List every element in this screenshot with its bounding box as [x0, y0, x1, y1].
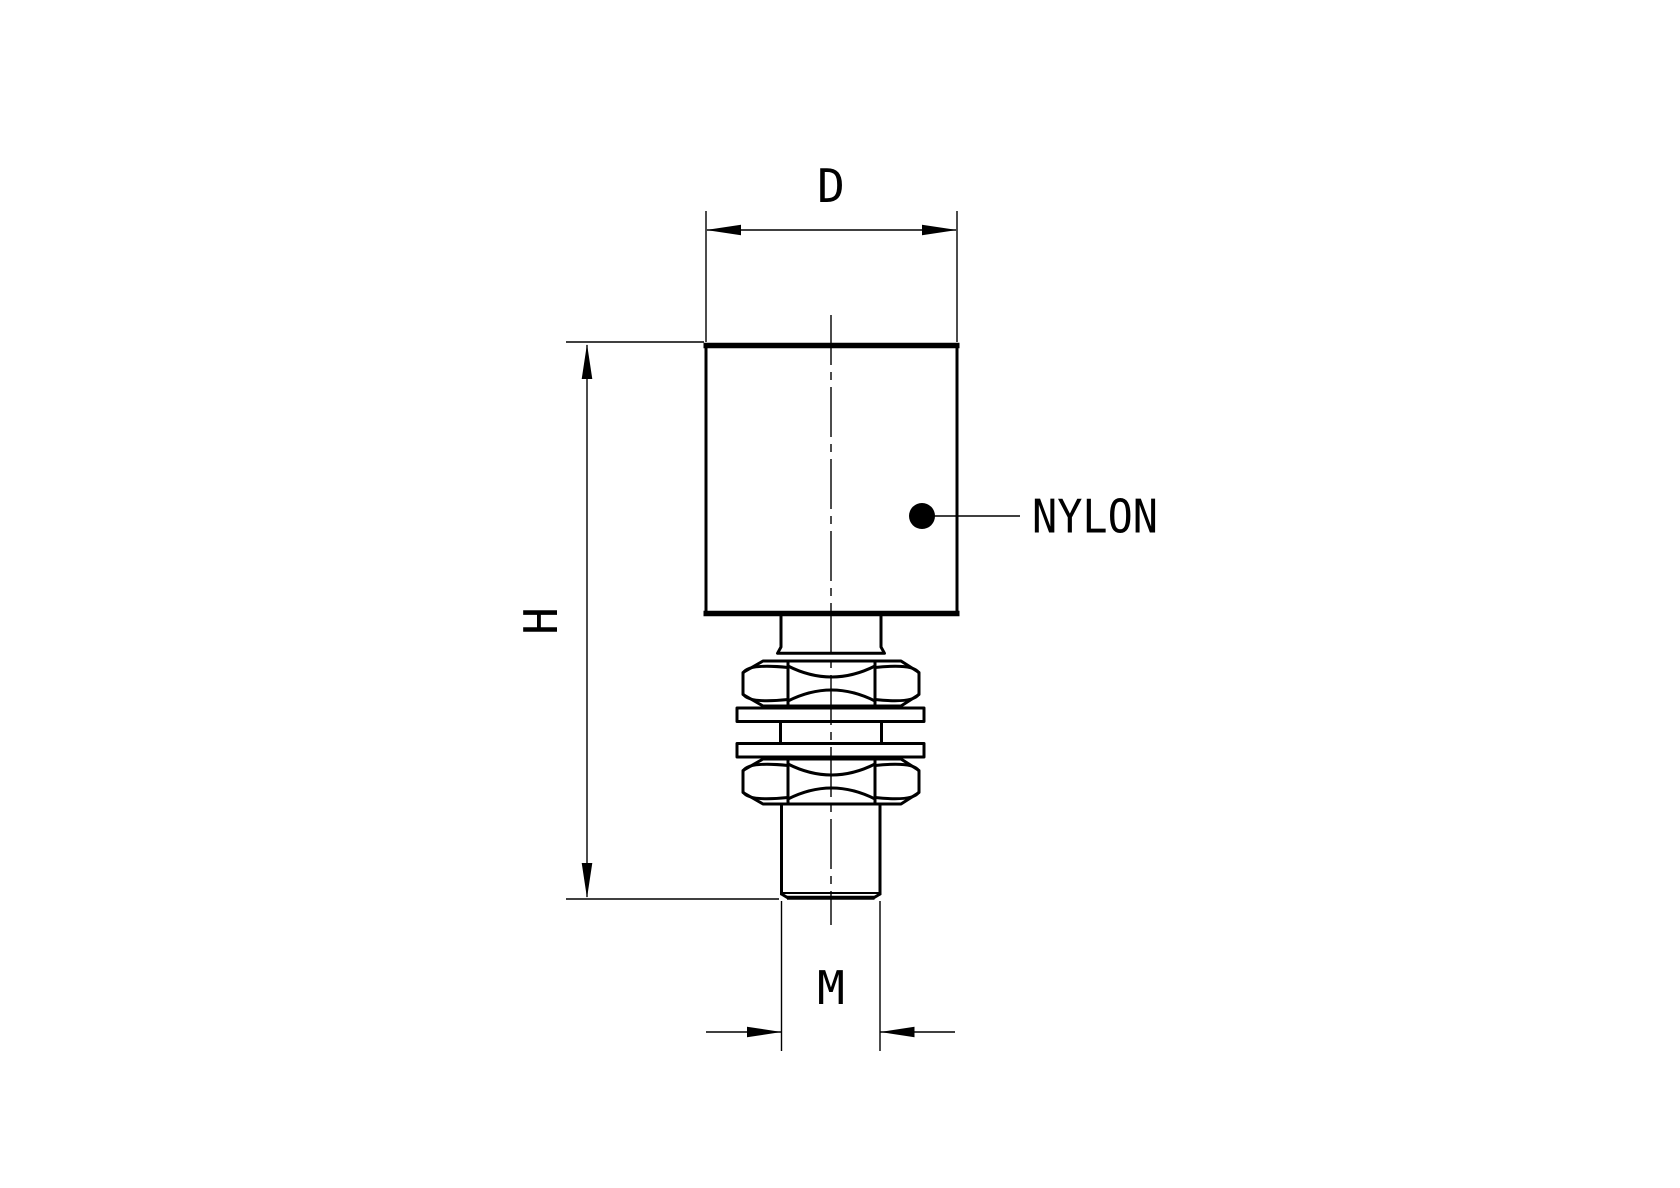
d-arrow-right [922, 225, 957, 236]
h-label: H [514, 607, 568, 635]
dimension-d: D [706, 159, 957, 342]
h-arrow-bottom [582, 863, 593, 898]
d-label: D [817, 159, 845, 213]
material-label: NYLON [1032, 490, 1158, 544]
stud-chamfer-left [782, 894, 788, 898]
drawing-canvas: D H M NYLON [0, 0, 1680, 1188]
h-arrow-top [582, 344, 593, 379]
m-arrow-left [747, 1027, 782, 1038]
m-label: M [817, 961, 845, 1015]
stud-chamfer-right [874, 894, 880, 898]
d-arrow-left [706, 225, 741, 236]
technical-drawing: D H M NYLON [0, 0, 1680, 1188]
m-arrow-right [880, 1027, 915, 1038]
part-view [704, 315, 960, 925]
